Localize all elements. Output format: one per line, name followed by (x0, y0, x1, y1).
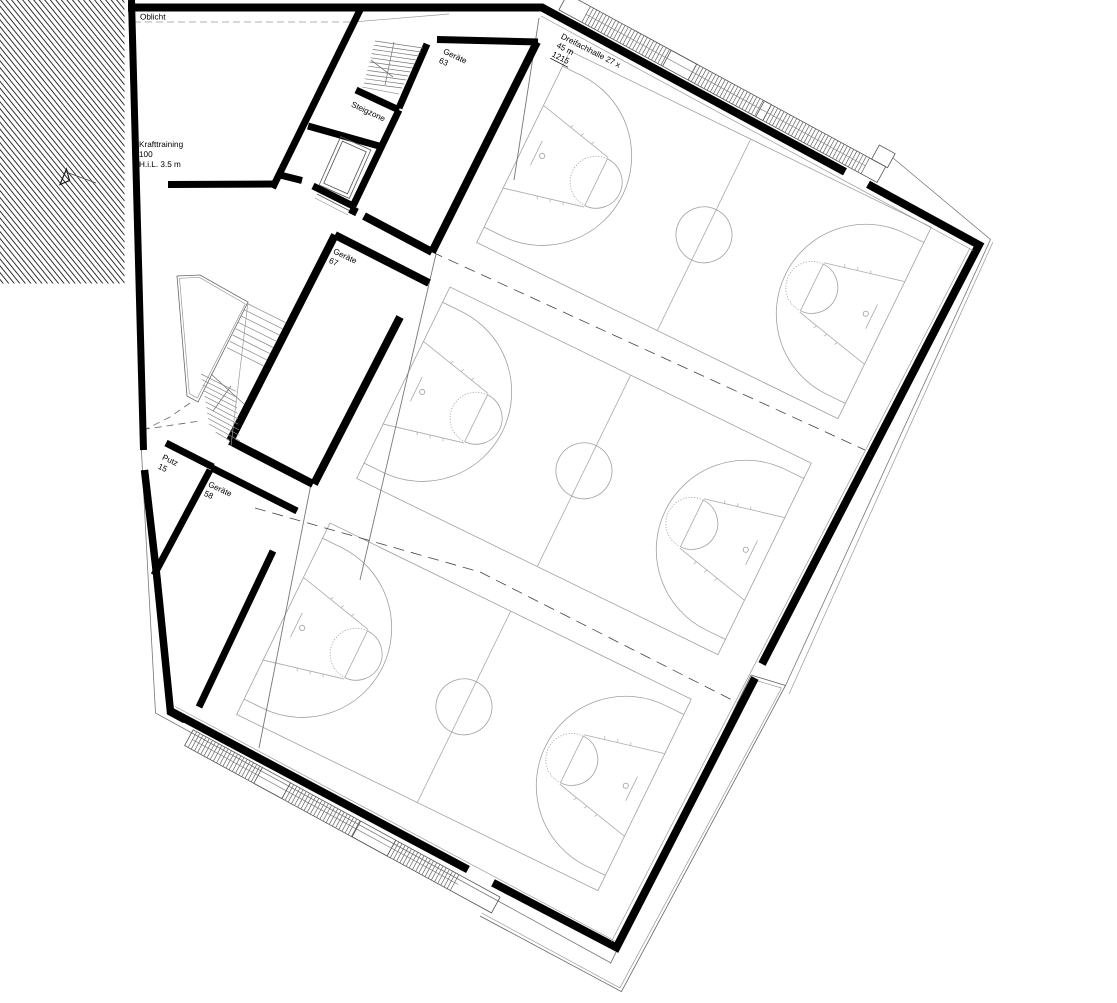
svg-text:Krafttraining: Krafttraining (139, 140, 184, 149)
svg-text:Oblicht: Oblicht (140, 13, 166, 22)
svg-text:100: 100 (139, 150, 153, 159)
svg-text:H.i.L. 3.5 m: H.i.L. 3.5 m (139, 160, 181, 169)
